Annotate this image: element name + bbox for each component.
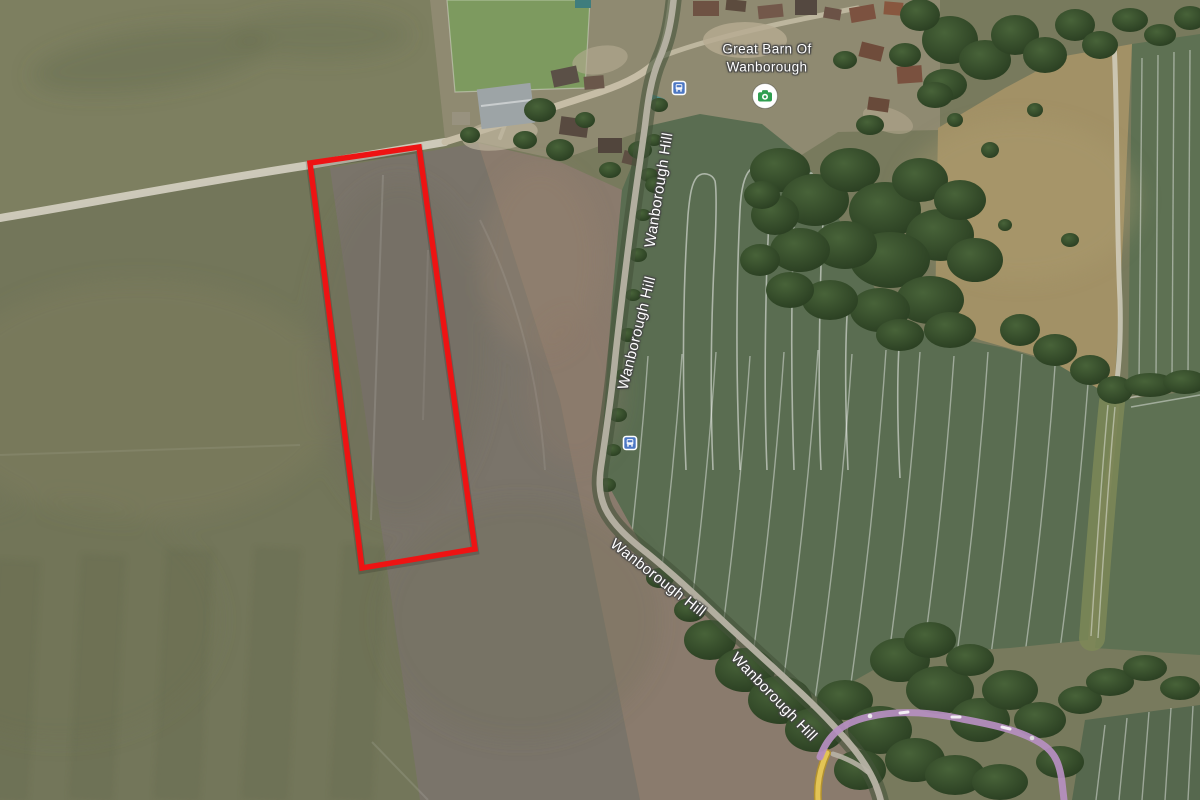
bus-stop-icon[interactable] — [672, 81, 687, 96]
attraction-camera-icon[interactable] — [752, 83, 779, 110]
poi-label-line1: Great Barn Of — [722, 40, 811, 58]
poi-label-great-barn[interactable]: Great Barn Of Wanborough — [722, 40, 811, 75]
satellite-imagery — [0, 0, 1200, 800]
bus-stop-icon[interactable] — [623, 436, 638, 451]
poi-label-line2: Wanborough — [722, 58, 811, 76]
map-canvas[interactable]: Great Barn Of Wanborough Wanboroug — [0, 0, 1200, 800]
